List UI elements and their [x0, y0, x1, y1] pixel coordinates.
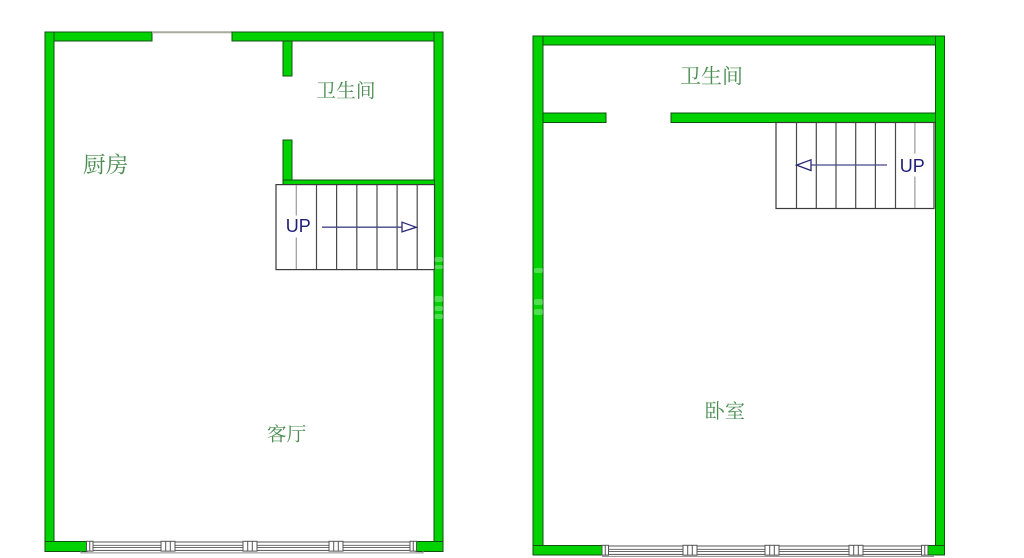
svg-text:UP: UP	[900, 156, 925, 176]
svg-text:UP: UP	[286, 216, 311, 236]
